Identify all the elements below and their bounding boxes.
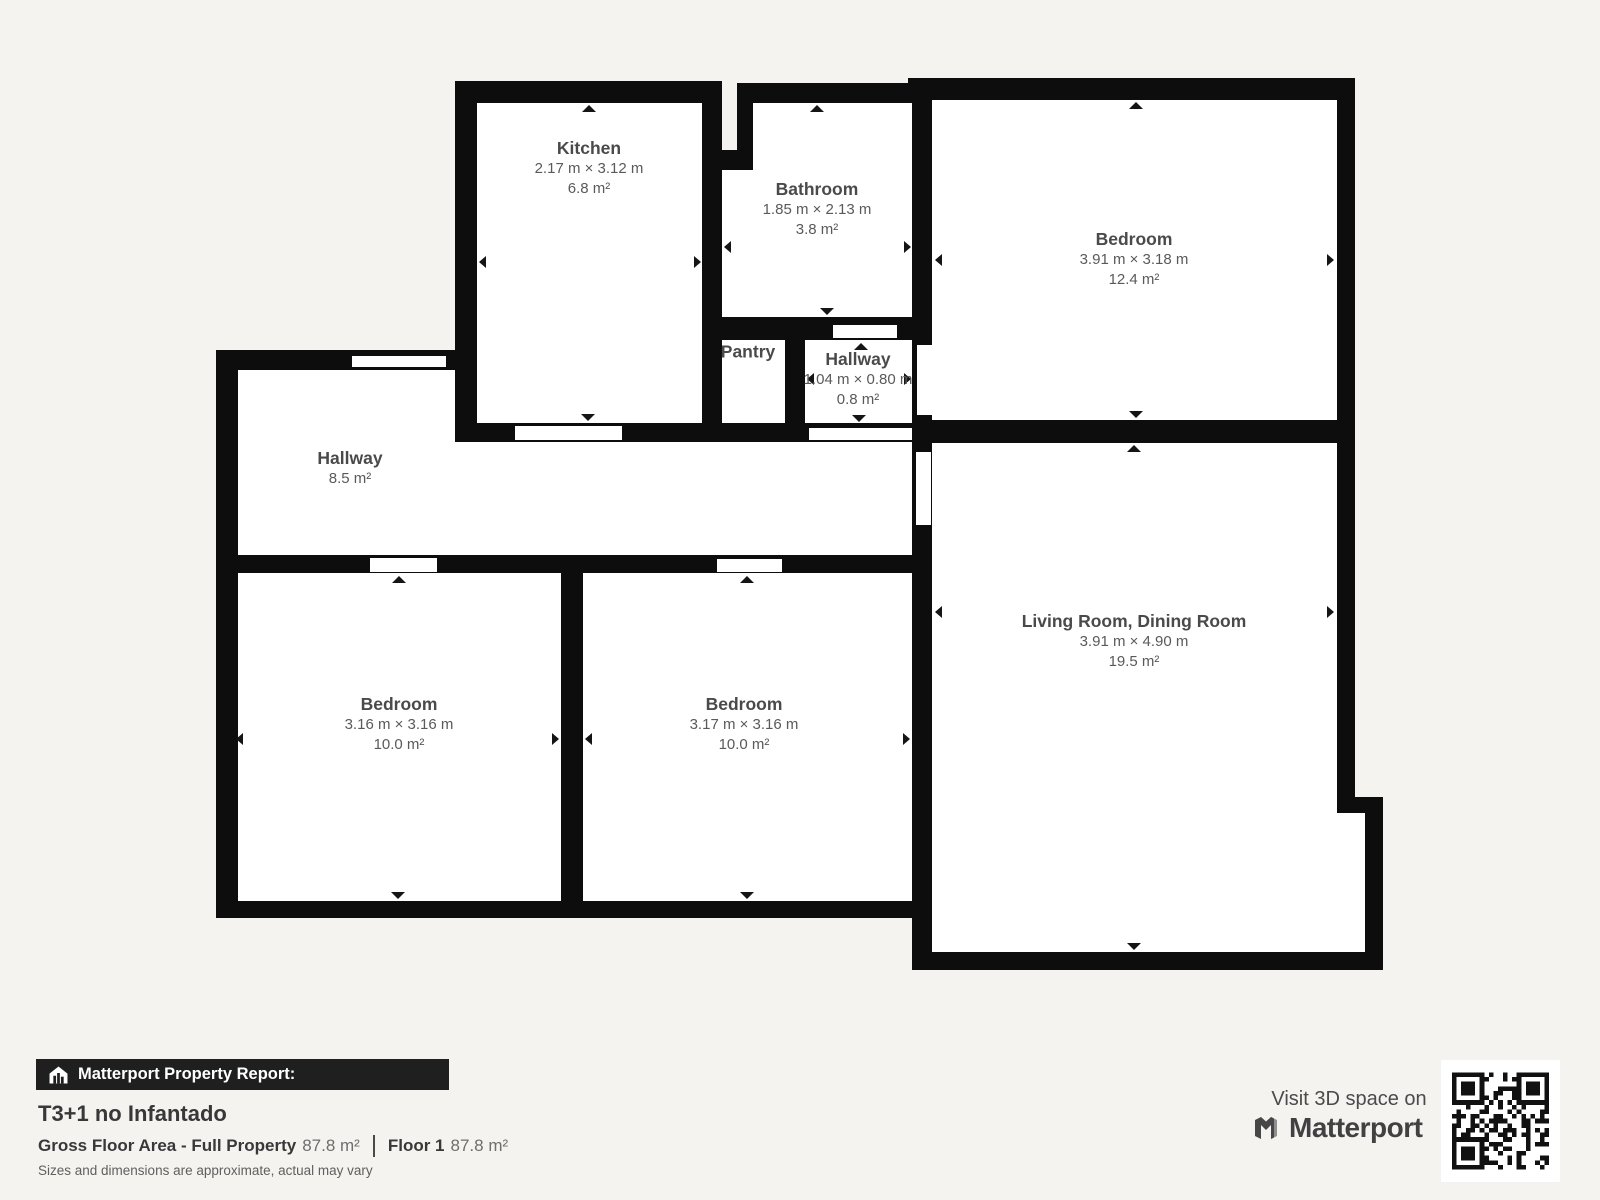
door-opening-living-room xyxy=(916,452,931,525)
gross-area-value: 87.8 m² xyxy=(302,1136,360,1156)
room-area: 12.4 m² xyxy=(1080,270,1189,290)
door-opening-bathroom xyxy=(833,325,897,338)
room-label-kitchen: Kitchen 2.17 m × 3.12 m 6.8 m² xyxy=(535,138,644,198)
wall xyxy=(785,340,805,423)
room-area: 0.8 m² xyxy=(804,390,913,410)
measure-arrow-left-icon xyxy=(585,733,592,745)
room-area: 8.5 m² xyxy=(317,469,382,489)
measure-arrow-right-icon xyxy=(904,241,911,253)
wall xyxy=(912,420,1355,443)
room-name: Pantry xyxy=(721,342,775,363)
wall xyxy=(912,952,1383,970)
floor-value: 87.8 m² xyxy=(451,1136,509,1156)
door-opening-kitchen xyxy=(515,426,622,440)
room-label-bedroom-bottom-middle: Bedroom 3.17 m × 3.16 m 10.0 m² xyxy=(690,694,799,754)
wall xyxy=(702,317,932,340)
area-summary: Gross Floor Area - Full Property 87.8 m²… xyxy=(38,1135,508,1157)
room-area: 10.0 m² xyxy=(690,735,799,755)
room-living-room xyxy=(932,813,1365,952)
visit-3d-text: Visit 3D space on xyxy=(1249,1088,1449,1111)
gross-area-label: Gross Floor Area - Full Property xyxy=(38,1136,296,1156)
measure-arrow-left-icon xyxy=(724,241,731,253)
room-name: Bedroom xyxy=(345,694,454,715)
wall xyxy=(737,83,753,153)
measure-arrow-right-icon xyxy=(694,256,701,268)
room-name: Hallway xyxy=(804,349,913,370)
qr-pattern xyxy=(1452,1072,1549,1170)
room-area: 6.8 m² xyxy=(535,179,644,199)
window-hallway xyxy=(352,356,446,367)
wall xyxy=(737,83,932,103)
divider xyxy=(373,1135,375,1157)
measure-arrow-left-icon xyxy=(935,254,942,266)
room-name: Bedroom xyxy=(690,694,799,715)
room-name: Bedroom xyxy=(1080,229,1189,250)
wall xyxy=(216,350,238,918)
measure-arrow-left-icon xyxy=(479,256,486,268)
room-dimensions: 3.91 m × 4.90 m xyxy=(1022,632,1247,652)
wall xyxy=(1365,797,1383,970)
measure-arrow-up-icon xyxy=(392,576,406,583)
measure-arrow-right-icon xyxy=(1327,606,1334,618)
floorplan-page: Kitchen 2.17 m × 3.12 m 6.8 m² Bathroom … xyxy=(0,0,1600,1200)
room-name: Kitchen xyxy=(535,138,644,159)
matterport-wordmark: Matterport xyxy=(1289,1112,1422,1144)
room-name: Living Room, Dining Room xyxy=(1022,611,1247,632)
door-opening-bedroom-bottom-middle xyxy=(717,559,782,572)
room-dimensions: 2.17 m × 3.12 m xyxy=(535,159,644,179)
room-label-bedroom-bottom-left: Bedroom 3.16 m × 3.16 m 10.0 m² xyxy=(345,694,454,754)
measure-arrow-up-icon xyxy=(740,576,754,583)
wall xyxy=(1337,78,1355,813)
matterport-logo: Matterport xyxy=(1251,1112,1422,1144)
measure-arrow-down-icon xyxy=(852,415,866,422)
measure-arrow-down-icon xyxy=(391,892,405,899)
measure-arrow-down-icon xyxy=(1129,411,1143,418)
room-area: 19.5 m² xyxy=(1022,652,1247,672)
floor-label: Floor 1 xyxy=(388,1136,445,1156)
measure-arrow-up-icon xyxy=(1127,445,1141,452)
room-bathroom xyxy=(753,103,912,170)
matterport-m-icon xyxy=(1251,1113,1281,1143)
room-dimensions: 3.17 m × 3.16 m xyxy=(690,715,799,735)
property-title: T3+1 no Infantado xyxy=(38,1101,227,1127)
measure-arrow-left-icon xyxy=(935,606,942,618)
measure-arrow-up-icon xyxy=(582,105,596,112)
wall xyxy=(702,83,722,423)
room-dimensions: 1.04 m × 0.80 m xyxy=(804,370,913,390)
measure-arrow-down-icon xyxy=(1127,943,1141,950)
wall xyxy=(455,81,722,103)
room-area: 3.8 m² xyxy=(763,220,872,240)
wall xyxy=(908,78,1355,100)
room-dimensions: 3.91 m × 3.18 m xyxy=(1080,250,1189,270)
measure-arrow-down-icon xyxy=(740,892,754,899)
wall xyxy=(216,901,932,918)
measure-arrow-up-icon xyxy=(1129,102,1143,109)
room-label-hallway-small: Hallway 1.04 m × 0.80 m 0.8 m² xyxy=(804,349,913,409)
wall xyxy=(722,150,753,170)
room-name: Bathroom xyxy=(763,179,872,200)
door-opening-bedroom-top-right xyxy=(917,345,932,415)
house-icon xyxy=(49,1066,68,1084)
door-opening-bedroom-bottom-left xyxy=(370,558,437,572)
room-hallway-main xyxy=(455,442,912,555)
measure-arrow-left-icon xyxy=(236,733,243,745)
room-name: Hallway xyxy=(317,448,382,469)
wall xyxy=(561,555,583,918)
room-label-bathroom: Bathroom 1.85 m × 2.13 m 3.8 m² xyxy=(763,179,872,239)
wall xyxy=(455,81,477,442)
measure-arrow-right-icon xyxy=(1327,254,1334,266)
qr-code xyxy=(1441,1060,1560,1182)
disclaimer-text: Sizes and dimensions are approximate, ac… xyxy=(38,1163,373,1178)
measure-arrow-right-icon xyxy=(903,733,910,745)
measure-arrow-right-icon xyxy=(552,733,559,745)
room-label-living-room: Living Room, Dining Room 3.91 m × 4.90 m… xyxy=(1022,611,1247,671)
door-opening-hallway-small xyxy=(809,428,912,440)
room-dimensions: 1.85 m × 2.13 m xyxy=(763,200,872,220)
room-label-pantry: Pantry xyxy=(721,342,775,363)
measure-arrow-down-icon xyxy=(581,414,595,421)
room-label-hallway-main: Hallway 8.5 m² xyxy=(317,448,382,489)
report-bar-label: Matterport Property Report: xyxy=(78,1065,295,1084)
room-dimensions: 3.16 m × 3.16 m xyxy=(345,715,454,735)
report-bar: Matterport Property Report: xyxy=(36,1059,449,1090)
room-area: 10.0 m² xyxy=(345,735,454,755)
room-label-bedroom-top-right: Bedroom 3.91 m × 3.18 m 12.4 m² xyxy=(1080,229,1189,289)
measure-arrow-down-icon xyxy=(820,308,834,315)
measure-arrow-up-icon xyxy=(810,105,824,112)
